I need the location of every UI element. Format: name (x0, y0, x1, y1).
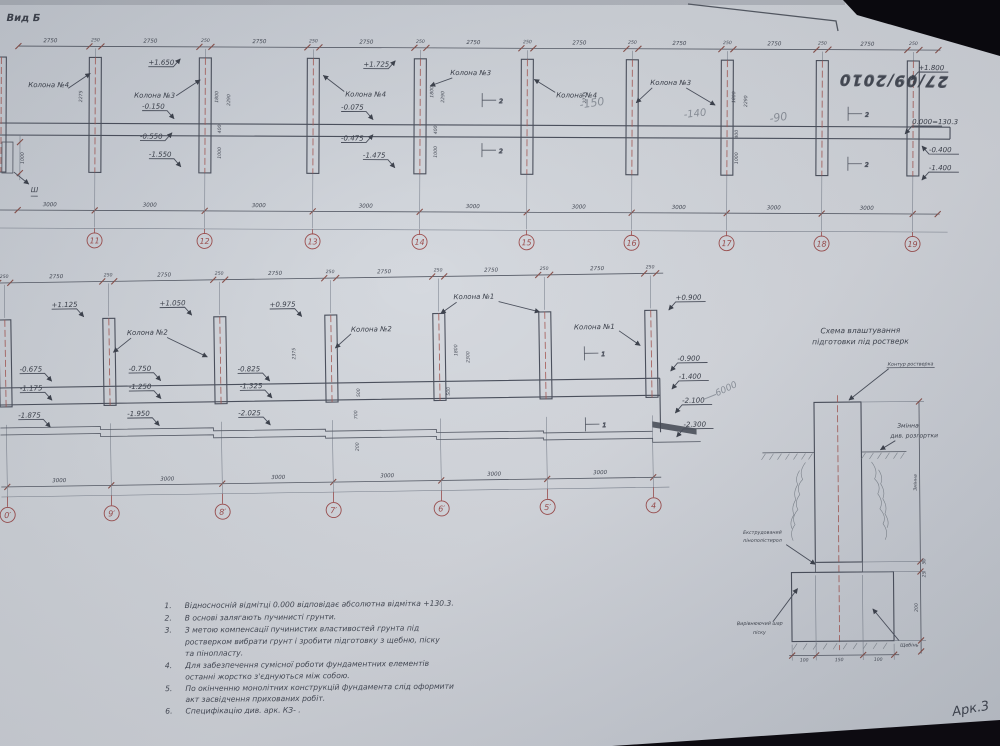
photographed-blueprint: Вид Б 1000 Ш 27502750 27502750 27502750 … (0, 0, 1000, 746)
blueprint-canvas: Вид Б 1000 Ш 27502750 27502750 27502750 … (0, 0, 1000, 746)
top-edge-shadow (0, 0, 845, 5)
vignette (0, 0, 1000, 746)
